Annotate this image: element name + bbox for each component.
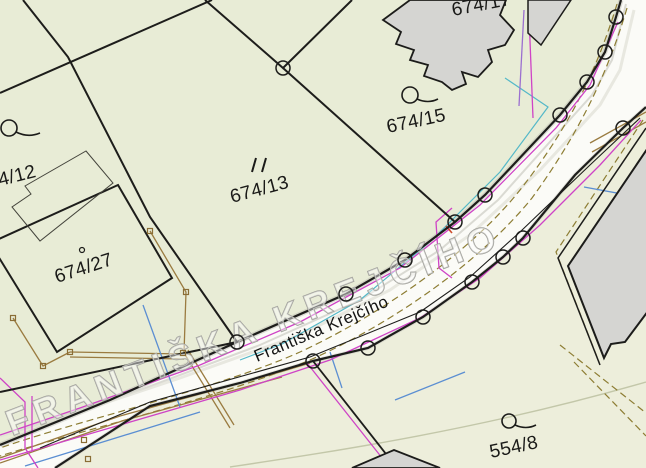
cadastral-map[interactable]: FRANTIŠKA KREJČÍHO Františka Krejčího: [0, 0, 646, 468]
map-canvas[interactable]: FRANTIŠKA KREJČÍHO Františka Krejčího: [0, 0, 646, 468]
